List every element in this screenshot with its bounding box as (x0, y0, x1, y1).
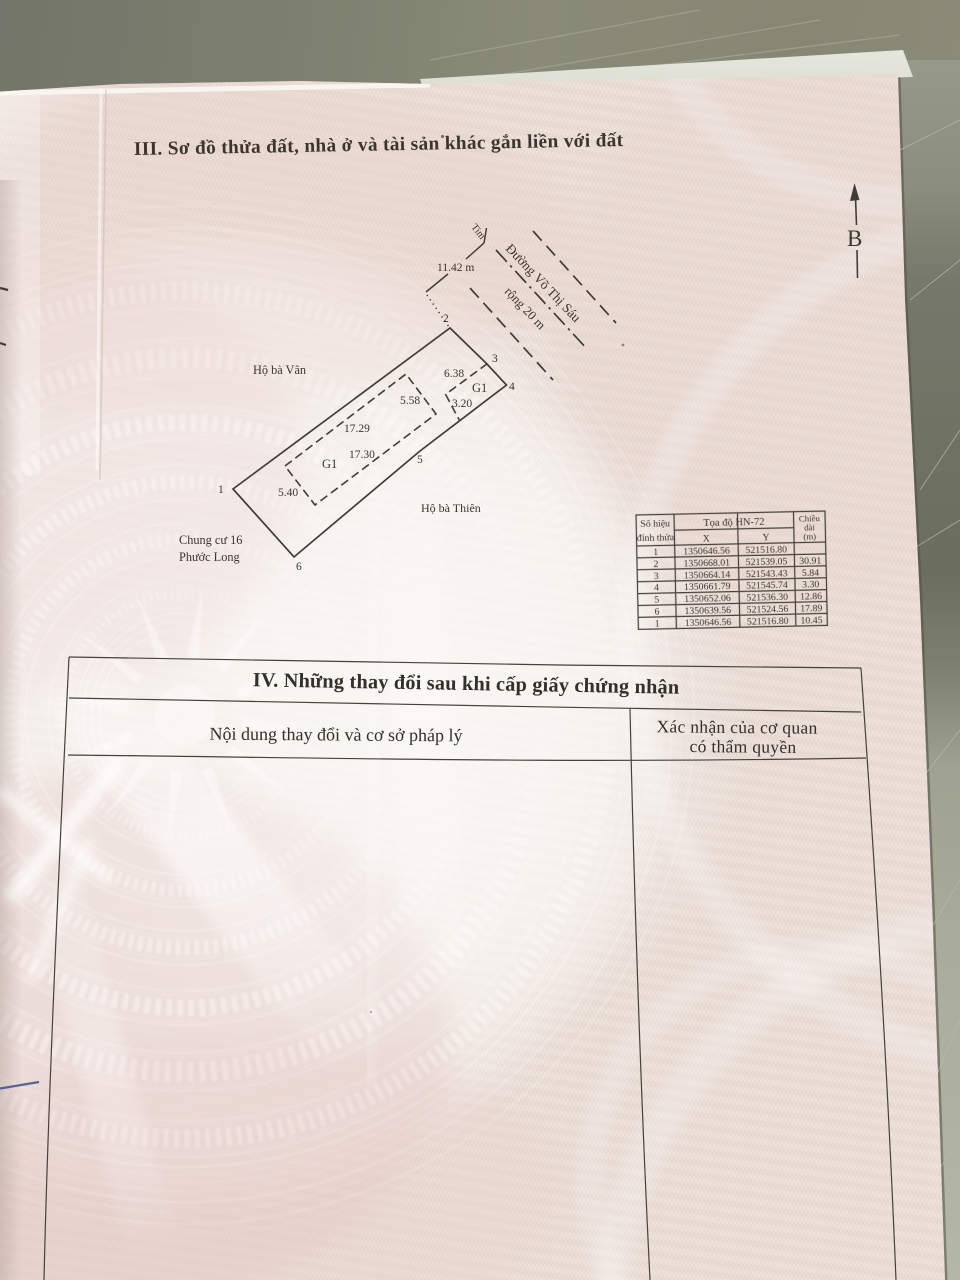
svg-text:Xác nhận của cơ quan: Xác nhận của cơ quan (656, 716, 817, 737)
svg-text:521536.30: 521536.30 (746, 592, 788, 604)
svg-text:Nội dung thay đổi và cơ sở phá: Nội dung thay đổi và cơ sở pháp lý (209, 724, 462, 746)
svg-text:Hộ bà Thiên: Hộ bà Thiên (421, 501, 481, 515)
svg-text:521516.80: 521516.80 (745, 544, 787, 556)
svg-text:2: 2 (443, 313, 449, 325)
svg-text:Tọa độ HN-72: Tọa độ HN-72 (703, 517, 764, 529)
svg-text:6: 6 (296, 561, 302, 573)
svg-text:3: 3 (654, 571, 659, 582)
svg-text:10.45: 10.45 (800, 615, 822, 626)
svg-text:6.38: 6.38 (444, 368, 464, 380)
svg-text:17.30: 17.30 (349, 449, 375, 461)
svg-text:17.89: 17.89 (800, 603, 822, 614)
svg-text:521545.74: 521545.74 (746, 580, 788, 592)
svg-text:3.30: 3.30 (802, 579, 819, 590)
svg-text:5: 5 (654, 595, 659, 606)
svg-text:521516.80: 521516.80 (747, 616, 789, 628)
svg-text:G1: G1 (322, 457, 337, 471)
svg-text:12.86: 12.86 (800, 591, 822, 602)
svg-text:17.29: 17.29 (344, 423, 370, 435)
svg-text:có thẩm quyền: có thẩm quyền (689, 736, 796, 757)
svg-text:1350646.56: 1350646.56 (683, 546, 730, 558)
svg-text:6: 6 (654, 607, 659, 618)
svg-text:5.84: 5.84 (802, 567, 819, 578)
svg-text:X: X (703, 533, 710, 544)
svg-text:1: 1 (653, 547, 658, 558)
svg-text:30.91: 30.91 (799, 556, 821, 567)
svg-text:Chung cư 16: Chung cư 16 (179, 533, 242, 547)
svg-text:3.20: 3.20 (452, 398, 472, 410)
svg-text:11.42 m: 11.42 m (437, 262, 474, 274)
svg-text:5: 5 (417, 454, 423, 466)
svg-text:521539.05: 521539.05 (746, 556, 788, 568)
svg-text:1350664.14: 1350664.14 (684, 569, 731, 581)
svg-text:2: 2 (653, 559, 658, 570)
svg-text:521543.43: 521543.43 (746, 568, 788, 580)
svg-text:Hộ bà Vân: Hộ bà Vân (253, 363, 306, 377)
svg-text:Phước Long: Phước Long (179, 550, 240, 564)
svg-text:1350646.56: 1350646.56 (685, 617, 732, 629)
svg-text:1350652.06: 1350652.06 (684, 593, 731, 605)
svg-text:1: 1 (218, 484, 224, 496)
svg-text:B: B (847, 226, 862, 251)
svg-text:5.58: 5.58 (400, 395, 420, 407)
svg-text:(m): (m) (803, 531, 816, 541)
svg-text:1350668.01: 1350668.01 (683, 557, 730, 569)
svg-text:đỉnh thửa: đỉnh thửa (637, 532, 675, 544)
svg-text:5.40: 5.40 (278, 487, 298, 499)
svg-text:1350661.79: 1350661.79 (684, 581, 731, 593)
svg-text:Số hiệu: Số hiệu (640, 518, 670, 530)
svg-text:1350639.56: 1350639.56 (684, 605, 731, 617)
svg-text:G1: G1 (472, 381, 487, 395)
svg-text:4: 4 (509, 381, 515, 393)
svg-text:3: 3 (492, 353, 498, 365)
svg-text:1: 1 (655, 619, 660, 630)
svg-text:4: 4 (654, 583, 659, 594)
svg-text:Y: Y (762, 532, 769, 543)
svg-text:521524.56: 521524.56 (747, 604, 789, 616)
